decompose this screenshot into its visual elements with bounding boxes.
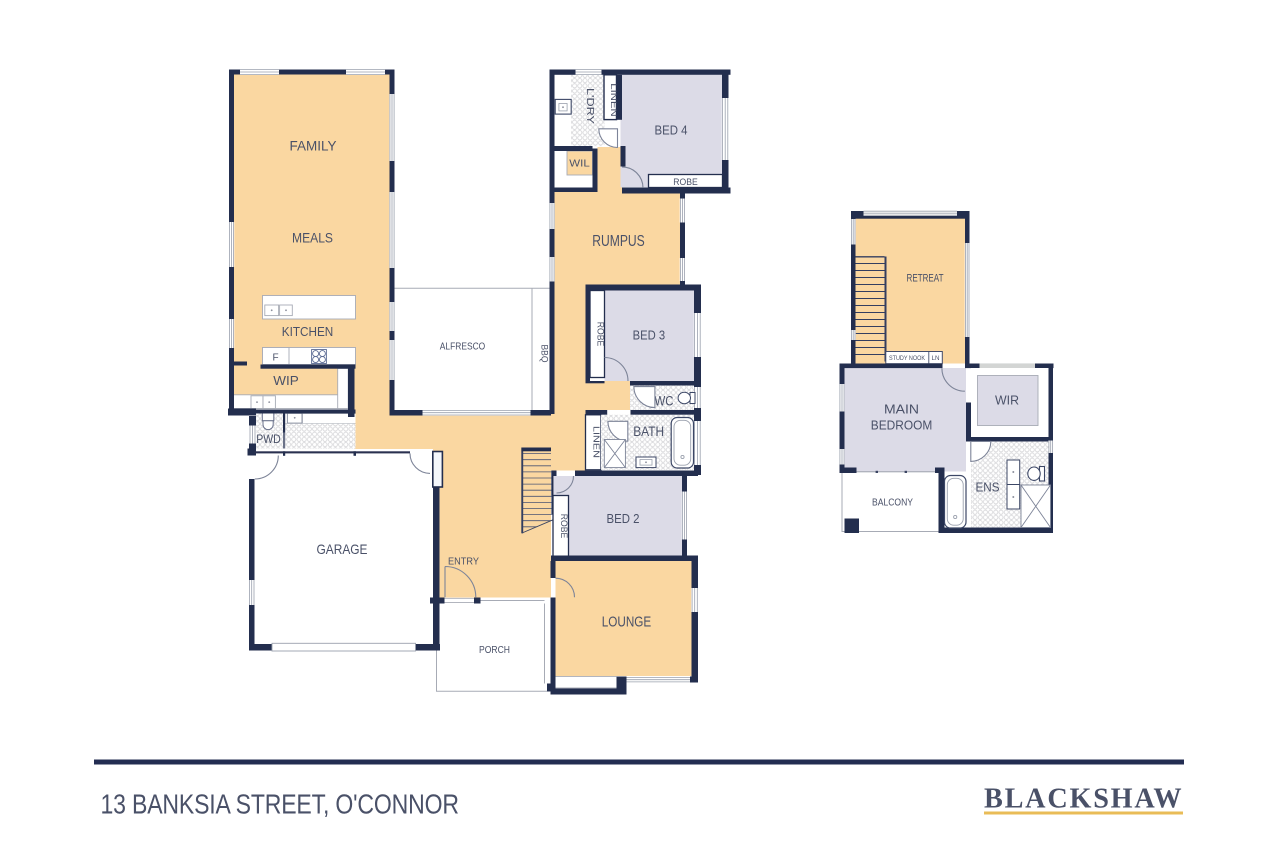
- svg-text:LINEN: LINEN: [591, 426, 601, 458]
- svg-text:LOUNGE: LOUNGE: [602, 615, 652, 631]
- svg-text:BBQ: BBQ: [540, 345, 550, 363]
- svg-text:WIR: WIR: [995, 394, 1019, 408]
- svg-text:LN: LN: [931, 355, 940, 362]
- svg-text:MEALS: MEALS: [292, 231, 333, 246]
- svg-text:BED 2: BED 2: [607, 511, 640, 526]
- svg-text:STUDY NOOK: STUDY NOOK: [889, 355, 926, 362]
- svg-text:BALCONY: BALCONY: [872, 498, 913, 509]
- svg-text:RETREAT: RETREAT: [907, 273, 944, 285]
- svg-text:KITCHEN: KITCHEN: [282, 324, 334, 339]
- svg-text:BLACKSHAW: BLACKSHAW: [984, 783, 1183, 814]
- svg-text:MAIN: MAIN: [884, 402, 919, 417]
- svg-text:ROBE: ROBE: [594, 322, 605, 347]
- svg-text:BED 4: BED 4: [655, 123, 688, 138]
- svg-text:ENTRY: ENTRY: [448, 556, 479, 568]
- svg-text:F: F: [272, 353, 278, 364]
- svg-text:ALFRESCO: ALFRESCO: [440, 342, 486, 353]
- svg-text:FAMILY: FAMILY: [290, 139, 337, 154]
- svg-text:BEDROOM: BEDROOM: [871, 418, 933, 433]
- svg-text:GARAGE: GARAGE: [317, 542, 368, 557]
- svg-text:BED 3: BED 3: [633, 328, 666, 343]
- svg-text:ENS: ENS: [976, 481, 1000, 495]
- svg-text:PORCH: PORCH: [479, 645, 510, 656]
- svg-text:ROBE: ROBE: [673, 177, 698, 188]
- svg-text:ROBE: ROBE: [558, 514, 569, 539]
- svg-text:PWD: PWD: [256, 432, 281, 446]
- svg-text:RUMPUS: RUMPUS: [592, 233, 645, 250]
- svg-text:WIP: WIP: [273, 373, 299, 388]
- svg-text:BATH: BATH: [633, 423, 664, 439]
- svg-text:L'DRY: L'DRY: [584, 88, 596, 124]
- svg-text:13 BANKSIA STREET, O'CONNOR: 13 BANKSIA STREET, O'CONNOR: [101, 790, 459, 820]
- svg-text:WIL: WIL: [569, 159, 590, 170]
- svg-text:WC: WC: [655, 394, 674, 409]
